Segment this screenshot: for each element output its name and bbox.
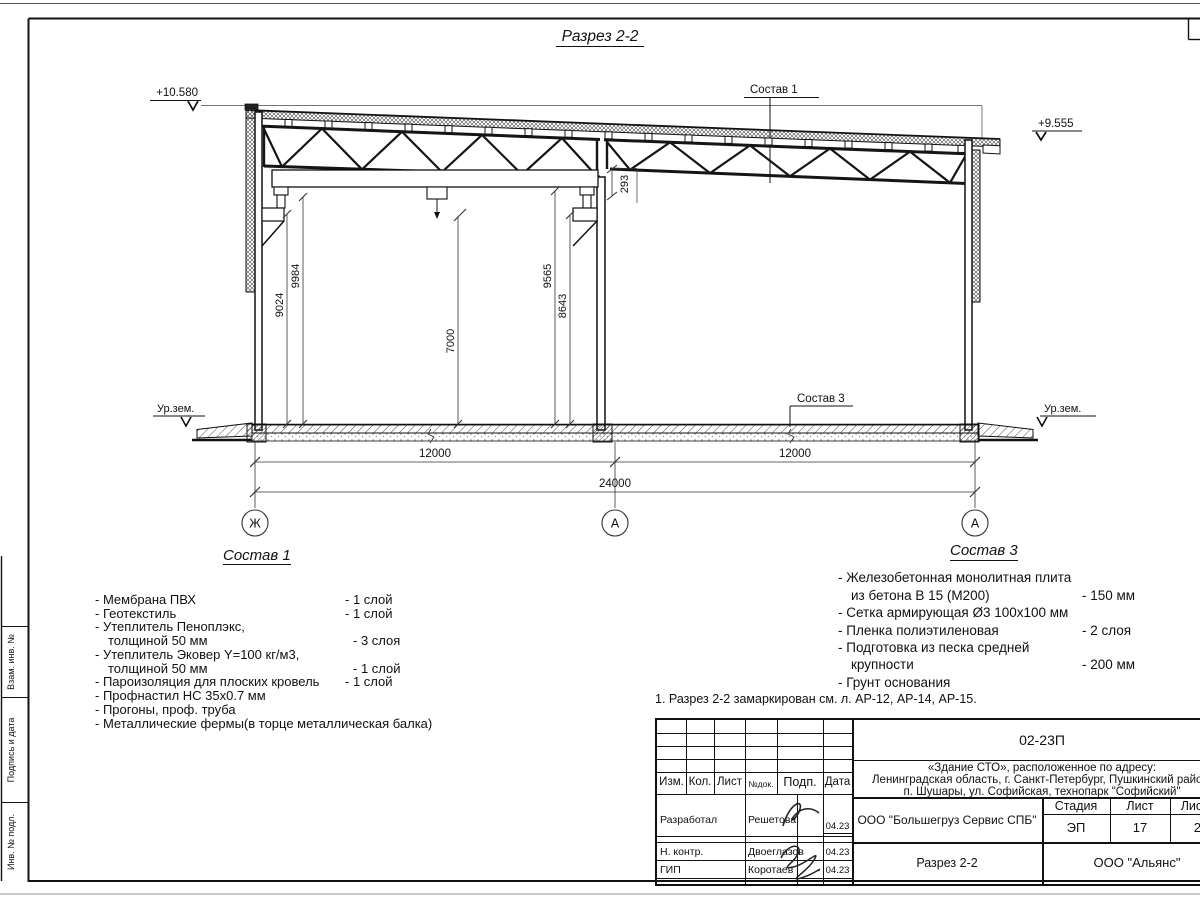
signature-scribble <box>775 840 825 886</box>
sheets-value: 21 <box>1170 820 1200 835</box>
row-role: ГИП <box>660 864 681 876</box>
row-role: Н. контр. <box>660 846 703 858</box>
list-item: крупности- 200 мм <box>838 656 1188 673</box>
axis-bubble-zh: Ж <box>249 517 261 531</box>
list-item: - Геотекстиль- 1 слой <box>95 607 475 621</box>
vertical-dimension-labels: 9024 9984 7000 9565 8643 <box>274 264 569 353</box>
axis-bubble-a2: А <box>971 517 980 531</box>
list-item: - Профнастил НС 35х0.7 мм <box>95 689 475 703</box>
apron-right <box>978 423 1033 438</box>
wall-right <box>965 140 980 430</box>
signature-scribble <box>779 796 823 836</box>
elevation-left-value: +10.580 <box>156 87 198 99</box>
leader-sostav1-label: Состав 1 <box>750 84 798 96</box>
title-block: Изм. Кол. Лист №док. Подп. Дата Разработ… <box>655 718 1200 886</box>
row-date: 04.23 <box>823 865 852 876</box>
page-edge-bottom <box>0 893 1200 895</box>
dim-293: 293 <box>619 175 631 193</box>
list-item: - Пленка полиэтиленовая- 2 слоя <box>838 622 1188 639</box>
col-podp: Подп. <box>777 775 823 789</box>
wall-left <box>246 108 262 430</box>
col-ndok: №док. <box>745 779 777 789</box>
sostav1-heading: Состав 1 <box>223 549 291 565</box>
truss-right <box>604 140 972 184</box>
column-center <box>597 177 605 430</box>
dim-total: 24000 <box>599 478 631 490</box>
list-item: - Железобетонная монолитная плита <box>838 569 1188 586</box>
project-code: 02-23П <box>852 732 1200 748</box>
side-label-inv: Инв. № подл. <box>6 814 16 870</box>
list-item: толщиной 50 мм- 1 слой <box>95 662 475 676</box>
leader-sostav3: Состав 3 <box>790 393 853 427</box>
list-item: из бетона В 15 (М200)- 150 мм <box>838 587 1188 604</box>
ground-right-text: Ур.зем. <box>1044 403 1081 415</box>
stage-value: ЭП <box>1042 820 1110 835</box>
ground-label-left: Ур.зем. <box>153 403 205 426</box>
sostav3-block: Состав 3 - Железобетонная монолитная пли… <box>838 542 1188 691</box>
list-item: - Пароизоляция для плоских кровель- 1 сл… <box>95 675 475 689</box>
list-item: - Мембрана ПВХ- 1 слой <box>95 593 475 607</box>
col-list: Лист <box>714 776 745 788</box>
object-line: Ленинградская область, г. Санкт-Петербур… <box>852 774 1200 786</box>
page-edge-top <box>0 3 1200 4</box>
col-izm: Изм. <box>657 776 686 788</box>
dim-bay2: 12000 <box>779 448 811 460</box>
crane-beam <box>262 170 598 246</box>
foundation-right <box>960 424 979 442</box>
foundation-center <box>593 424 612 442</box>
row-date: 04.23 <box>823 847 852 858</box>
sostav3-heading: Состав 3 <box>950 542 1018 561</box>
elevation-right: +9.555 <box>1032 118 1082 140</box>
dim-9565: 9565 <box>542 264 554 288</box>
company-name: ООО "Большегруз Сервис СПБ" <box>852 813 1042 827</box>
dim-bay1: 12000 <box>419 448 451 460</box>
crane-hook <box>427 187 447 219</box>
ground-label-right: Ур.зем. <box>1037 403 1096 426</box>
list-item: - Подготовка из песка средней <box>838 639 1188 656</box>
col-data: Дата <box>823 776 852 788</box>
org-name: ООО "Альянс" <box>1042 855 1200 870</box>
ground-slab <box>192 423 1038 443</box>
list-item: - Прогоны, проф. труба <box>95 703 475 717</box>
side-label-vzam: Взам. инв. № <box>6 634 16 690</box>
grid-axes: Ж А А <box>242 510 988 536</box>
dim-8643: 8643 <box>557 294 569 318</box>
list-item: - Грунт основания <box>838 674 1188 691</box>
elevation-left: +10.580 <box>150 87 201 110</box>
document-name: Разрез 2-2 <box>852 856 1042 870</box>
list-item: - Утеплитель Эковер Y=100 кг/м3, <box>95 648 475 662</box>
sheet-value: 17 <box>1110 820 1170 835</box>
sheets-label: Листов <box>1170 799 1200 813</box>
sheet-note: 1. Разрез 2-2 замаркирован см. л. АР-12,… <box>655 692 977 706</box>
page-title: Разрез 2-2 <box>562 28 639 45</box>
apron-left <box>197 423 252 438</box>
object-line: «Здание СТО», расположенное по адресу: <box>852 762 1200 774</box>
dim-7000: 7000 <box>445 329 457 353</box>
side-label-podpis: Подпись и дата <box>6 718 16 783</box>
drawing-title: Разрез 2-2 <box>556 28 644 47</box>
list-item: толщиной 50 мм- 3 слоя <box>95 634 475 648</box>
object-line: п. Шушары, ул. Софийская, технопарк "Соф… <box>852 786 1200 798</box>
drawing-sheet: Взам. инв. № Подпись и дата Инв. № подл.… <box>0 0 1200 900</box>
horizontal-dimensions <box>250 442 980 508</box>
list-item: - Металлические фермы(в торце металличес… <box>95 717 475 731</box>
axis-bubble-a1: А <box>611 517 620 531</box>
dim-9024: 9024 <box>274 293 286 317</box>
row-date: 04.23 <box>823 821 852 832</box>
eave-fascia <box>983 145 1000 154</box>
elevation-right-value: +9.555 <box>1038 118 1074 130</box>
sheet-label: Лист <box>1110 799 1170 813</box>
ground-left-text: Ур.зем. <box>157 403 194 415</box>
leader-sostav3-label: Состав 3 <box>797 393 845 405</box>
col-kol: Кол. <box>686 776 714 788</box>
stage-label: Стадия <box>1042 799 1110 813</box>
list-item: - Утеплитель Пеноплэкс, <box>95 620 475 634</box>
side-stamp-labels: Взам. инв. № Подпись и дата Инв. № подл. <box>6 634 16 870</box>
list-item: - Сетка армирующая Ø3 100х100 мм <box>838 604 1188 621</box>
dim-9984: 9984 <box>290 264 302 288</box>
row-role: Разработал <box>660 814 717 826</box>
vertical-dimensions <box>283 187 574 428</box>
sostav1-block: Состав 1 - Мембрана ПВХ- 1 слой - Геотек… <box>95 549 475 730</box>
